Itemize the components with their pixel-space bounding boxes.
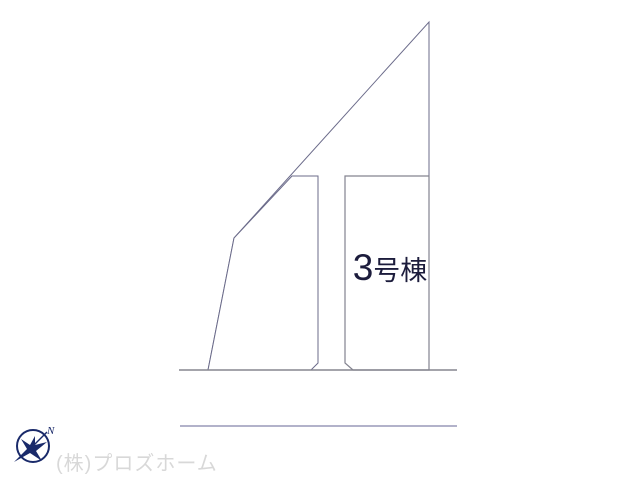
- lot-number: 3: [353, 247, 374, 288]
- company-watermark: (株)プロズホーム: [56, 447, 218, 476]
- plot-layout-diagram: 3号棟 N (株)プロズホーム: [0, 0, 640, 480]
- adjacent-parcel: [208, 176, 318, 370]
- lot-number-suffix: 号棟: [373, 256, 427, 286]
- compass-icon: N: [12, 422, 60, 472]
- compass-north-label: N: [46, 425, 55, 437]
- lot-3-label: 3号棟: [345, 248, 435, 288]
- lot-map: [0, 0, 640, 480]
